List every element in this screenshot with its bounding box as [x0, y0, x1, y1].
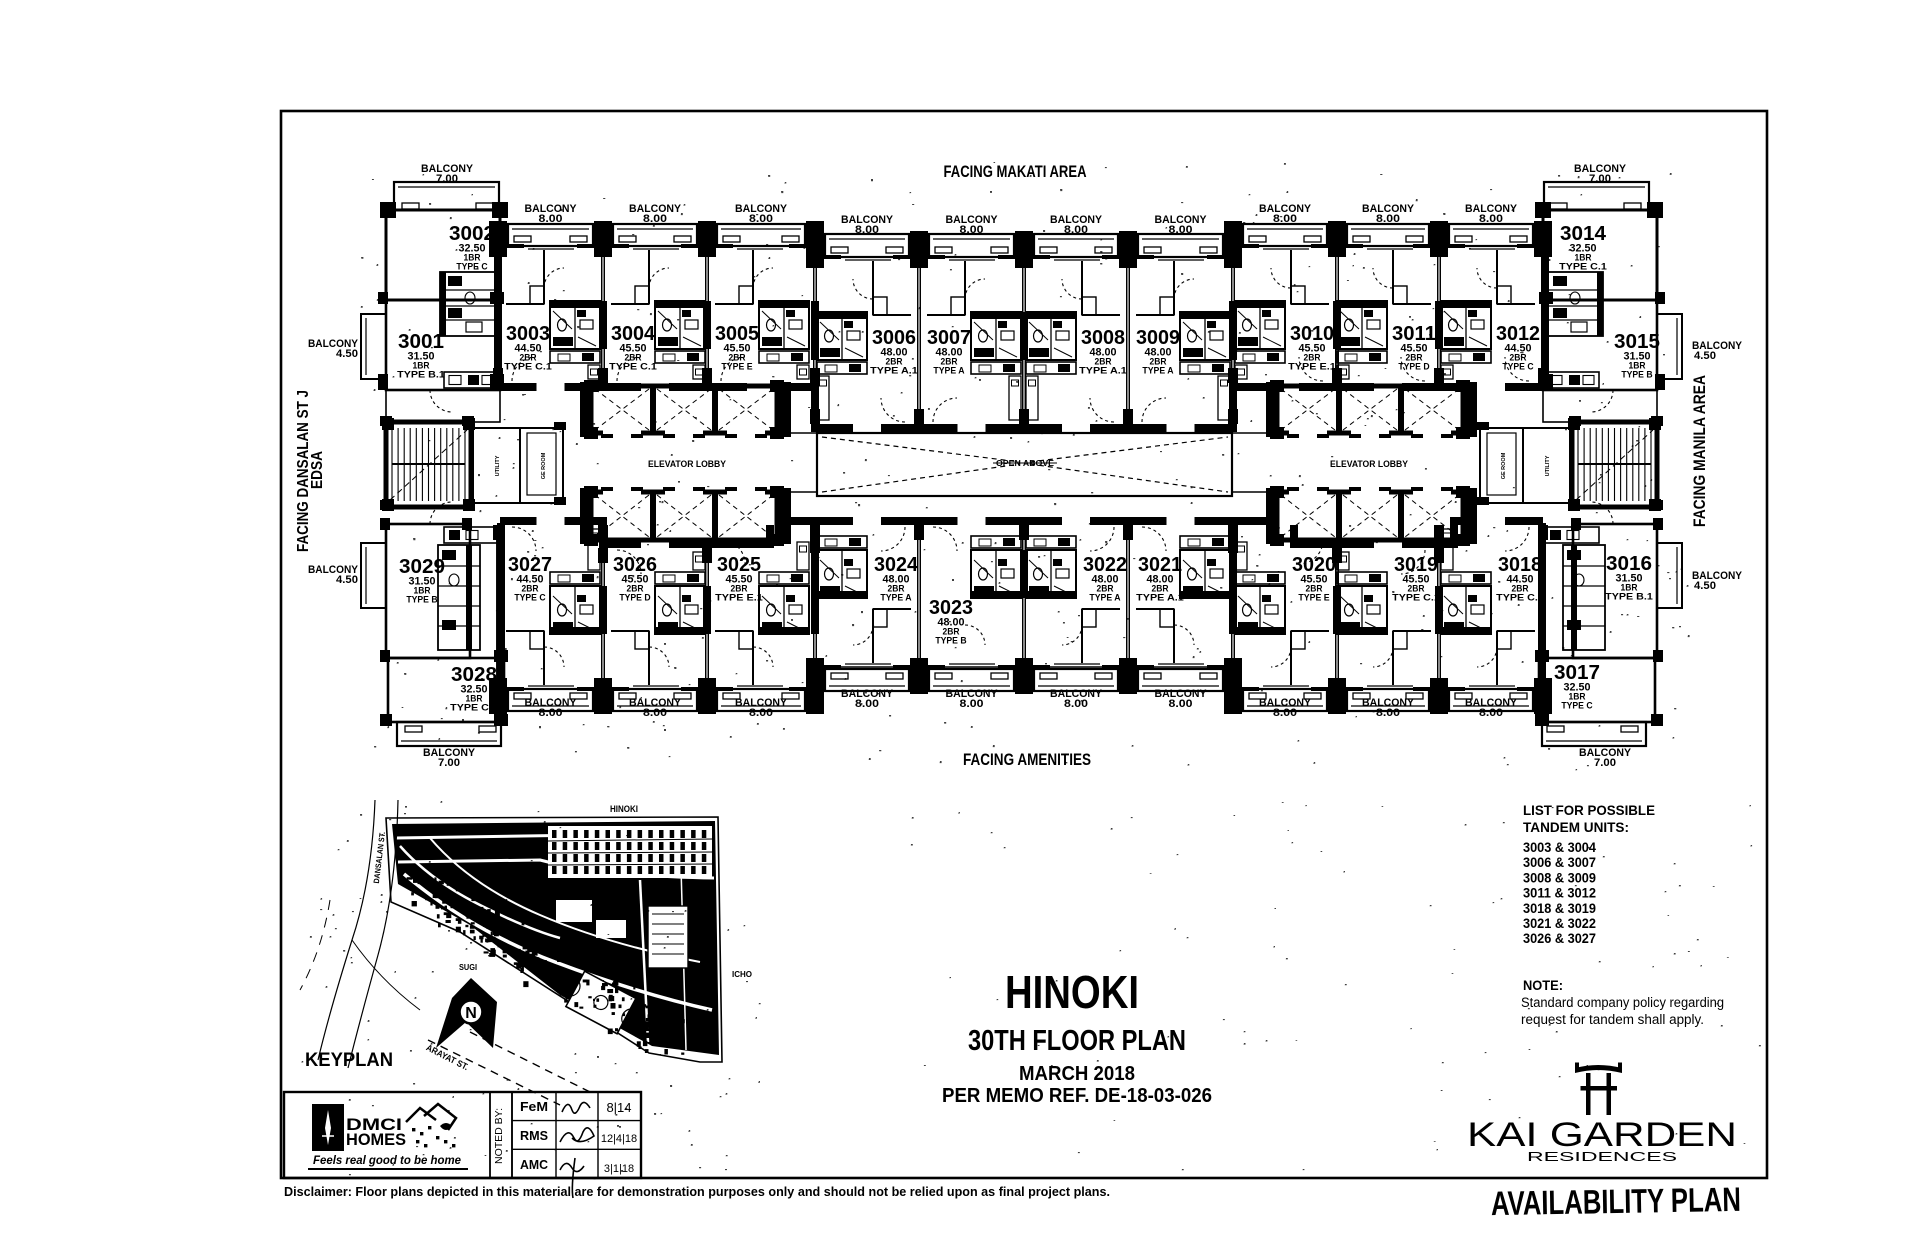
svg-text:TYPE D: TYPE D — [1398, 362, 1430, 372]
svg-text:8.00: 8.00 — [643, 213, 667, 225]
svg-text:TANDEM UNITS:: TANDEM UNITS: — [1523, 819, 1629, 835]
svg-text:3026 & 3027: 3026 & 3027 — [1523, 931, 1596, 946]
svg-text:NOTED BY:: NOTED BY: — [494, 1108, 505, 1164]
svg-text:TYPE E: TYPE E — [721, 362, 752, 372]
svg-text:4.50: 4.50 — [336, 348, 358, 360]
svg-text:4.50: 4.50 — [1694, 580, 1716, 592]
svg-text:8.00: 8.00 — [855, 224, 879, 236]
svg-text:8.00: 8.00 — [1479, 213, 1503, 225]
svg-text:AMC: AMC — [520, 1157, 549, 1172]
svg-text:8.00: 8.00 — [749, 213, 773, 225]
svg-text:N: N — [465, 1005, 477, 1022]
svg-text:TYPE A: TYPE A — [1142, 366, 1174, 376]
svg-text:30TH FLOOR PLAN: 30TH FLOOR PLAN — [968, 1025, 1186, 1057]
svg-text:FACING AMENITIES: FACING AMENITIES — [963, 750, 1091, 769]
svg-text:TYPE A: TYPE A — [1089, 593, 1121, 603]
svg-text:TYPE B: TYPE B — [935, 636, 967, 646]
svg-text:4.50: 4.50 — [336, 574, 358, 586]
svg-text:4.50: 4.50 — [1694, 350, 1716, 362]
svg-text:3021 & 3022: 3021 & 3022 — [1523, 916, 1596, 931]
svg-text:ICHO: ICHO — [732, 970, 752, 979]
svg-text:TYPE A: TYPE A — [880, 593, 912, 603]
svg-text:TYPE C.1: TYPE C.1 — [609, 362, 657, 372]
svg-text:EDSA: EDSA — [309, 451, 326, 489]
svg-text:8.00: 8.00 — [1064, 224, 1088, 236]
svg-text:ELEVATOR LOBBY: ELEVATOR LOBBY — [1330, 459, 1408, 469]
svg-text:TYPE C: TYPE C — [514, 593, 546, 603]
svg-text:TYPE C.1: TYPE C.1 — [1392, 593, 1440, 603]
svg-text:FeM: FeM — [520, 1099, 548, 1114]
svg-text:UTILITY: UTILITY — [495, 455, 501, 476]
svg-text:TYPE C.1: TYPE C.1 — [450, 703, 498, 713]
svg-text:12|4|18: 12|4|18 — [601, 1133, 637, 1145]
svg-text:FACING MANILA AREA: FACING MANILA AREA — [1690, 375, 1709, 527]
svg-text:3006 & 3007: 3006 & 3007 — [1523, 855, 1596, 870]
svg-text:KEYPLAN: KEYPLAN — [305, 1050, 393, 1071]
svg-text:HOMES: HOMES — [346, 1130, 406, 1149]
svg-text:3008 & 3009: 3008 & 3009 — [1523, 870, 1596, 885]
svg-text:7.00: 7.00 — [438, 757, 460, 769]
svg-text:HINOKI: HINOKI — [610, 804, 638, 814]
svg-text:7.00: 7.00 — [1589, 173, 1611, 185]
svg-text:8.00: 8.00 — [539, 707, 563, 719]
svg-text:3018 & 3019: 3018 & 3019 — [1523, 901, 1596, 916]
svg-text:8.00: 8.00 — [1273, 707, 1297, 719]
svg-text:TYPE D: TYPE D — [619, 593, 651, 603]
svg-text:3003 & 3004: 3003 & 3004 — [1523, 840, 1596, 855]
svg-text:TYPE B.1: TYPE B.1 — [397, 370, 445, 380]
svg-text:8.00: 8.00 — [539, 213, 563, 225]
svg-text:MARCH 2018: MARCH 2018 — [1019, 1063, 1135, 1085]
svg-text:UTILITY: UTILITY — [1545, 455, 1551, 476]
svg-text:TYPE C.1: TYPE C.1 — [1559, 262, 1607, 272]
svg-text:TYPE A.1: TYPE A.1 — [870, 366, 918, 376]
svg-text:AVAILABILITY PLAN: AVAILABILITY PLAN — [1491, 1181, 1742, 1223]
svg-text:7.00: 7.00 — [1594, 757, 1616, 769]
svg-text:GE ROOM: GE ROOM — [541, 452, 547, 479]
svg-text:SUGI: SUGI — [459, 963, 477, 972]
svg-text:Feels real good to be home: Feels real good to be home — [313, 1153, 461, 1167]
svg-text:PER MEMO REF. DE-18-03-026: PER MEMO REF. DE-18-03-026 — [942, 1085, 1212, 1107]
svg-text:TYPE A.1: TYPE A.1 — [1136, 593, 1184, 603]
svg-text:TYPE E: TYPE E — [1298, 593, 1329, 603]
svg-text:TYPE C: TYPE C — [1502, 362, 1534, 372]
svg-text:8.00: 8.00 — [1169, 224, 1193, 236]
svg-text:TYPE E.1: TYPE E.1 — [1288, 362, 1336, 372]
svg-text:8.00: 8.00 — [1479, 707, 1503, 719]
svg-text:3|1|18: 3|1|18 — [604, 1163, 634, 1175]
svg-text:TYPE E.1: TYPE E.1 — [715, 593, 763, 603]
svg-text:8.00: 8.00 — [960, 698, 984, 710]
svg-text:Disclaimer: Floor plans depi: Disclaimer: Floor plans depicted in this… — [284, 1185, 1110, 1199]
svg-text:8.00: 8.00 — [1376, 213, 1400, 225]
svg-text:8.00: 8.00 — [855, 698, 879, 710]
svg-text:3011 & 3012: 3011 & 3012 — [1523, 886, 1596, 901]
svg-text:RMS: RMS — [520, 1128, 548, 1143]
svg-text:TYPE A: TYPE A — [933, 366, 965, 376]
svg-text:TYPE B: TYPE B — [1621, 370, 1653, 380]
svg-text:TYPE C: TYPE C — [1561, 701, 1593, 711]
svg-text:FACING MAKATI AREA: FACING MAKATI AREA — [944, 162, 1087, 181]
svg-text:8.00: 8.00 — [1273, 213, 1297, 225]
svg-text:Standard company policy regard: Standard company policy regarding — [1521, 995, 1724, 1010]
svg-text:TYPE C.1: TYPE C.1 — [504, 362, 552, 372]
svg-text:HINOKI: HINOKI — [1005, 966, 1139, 1018]
svg-text:8.00: 8.00 — [1376, 707, 1400, 719]
svg-text:TYPE A.1: TYPE A.1 — [1079, 366, 1127, 376]
svg-text:8.00: 8.00 — [960, 224, 984, 236]
svg-text:TYPE B.1: TYPE B.1 — [1605, 592, 1653, 602]
svg-text:8.00: 8.00 — [643, 707, 667, 719]
svg-text:ELEVATOR LOBBY: ELEVATOR LOBBY — [648, 459, 726, 469]
svg-text:TYPE C.1: TYPE C.1 — [1496, 593, 1544, 603]
svg-text:TYPE B: TYPE B — [406, 595, 438, 605]
svg-text:TYPE C: TYPE C — [456, 262, 488, 272]
svg-text:GE ROOM: GE ROOM — [1501, 452, 1507, 479]
svg-text:NOTE:: NOTE: — [1523, 977, 1563, 993]
svg-text:request for tandem shall apply: request for tandem shall apply. — [1521, 1012, 1704, 1027]
svg-text:8.00: 8.00 — [1169, 698, 1193, 710]
svg-text:LIST FOR POSSIBLE: LIST FOR POSSIBLE — [1523, 802, 1655, 818]
svg-text:8|14: 8|14 — [606, 1100, 631, 1115]
svg-text:8.00: 8.00 — [749, 707, 773, 719]
svg-text:7.00: 7.00 — [436, 173, 458, 185]
svg-text:8.00: 8.00 — [1064, 698, 1088, 710]
